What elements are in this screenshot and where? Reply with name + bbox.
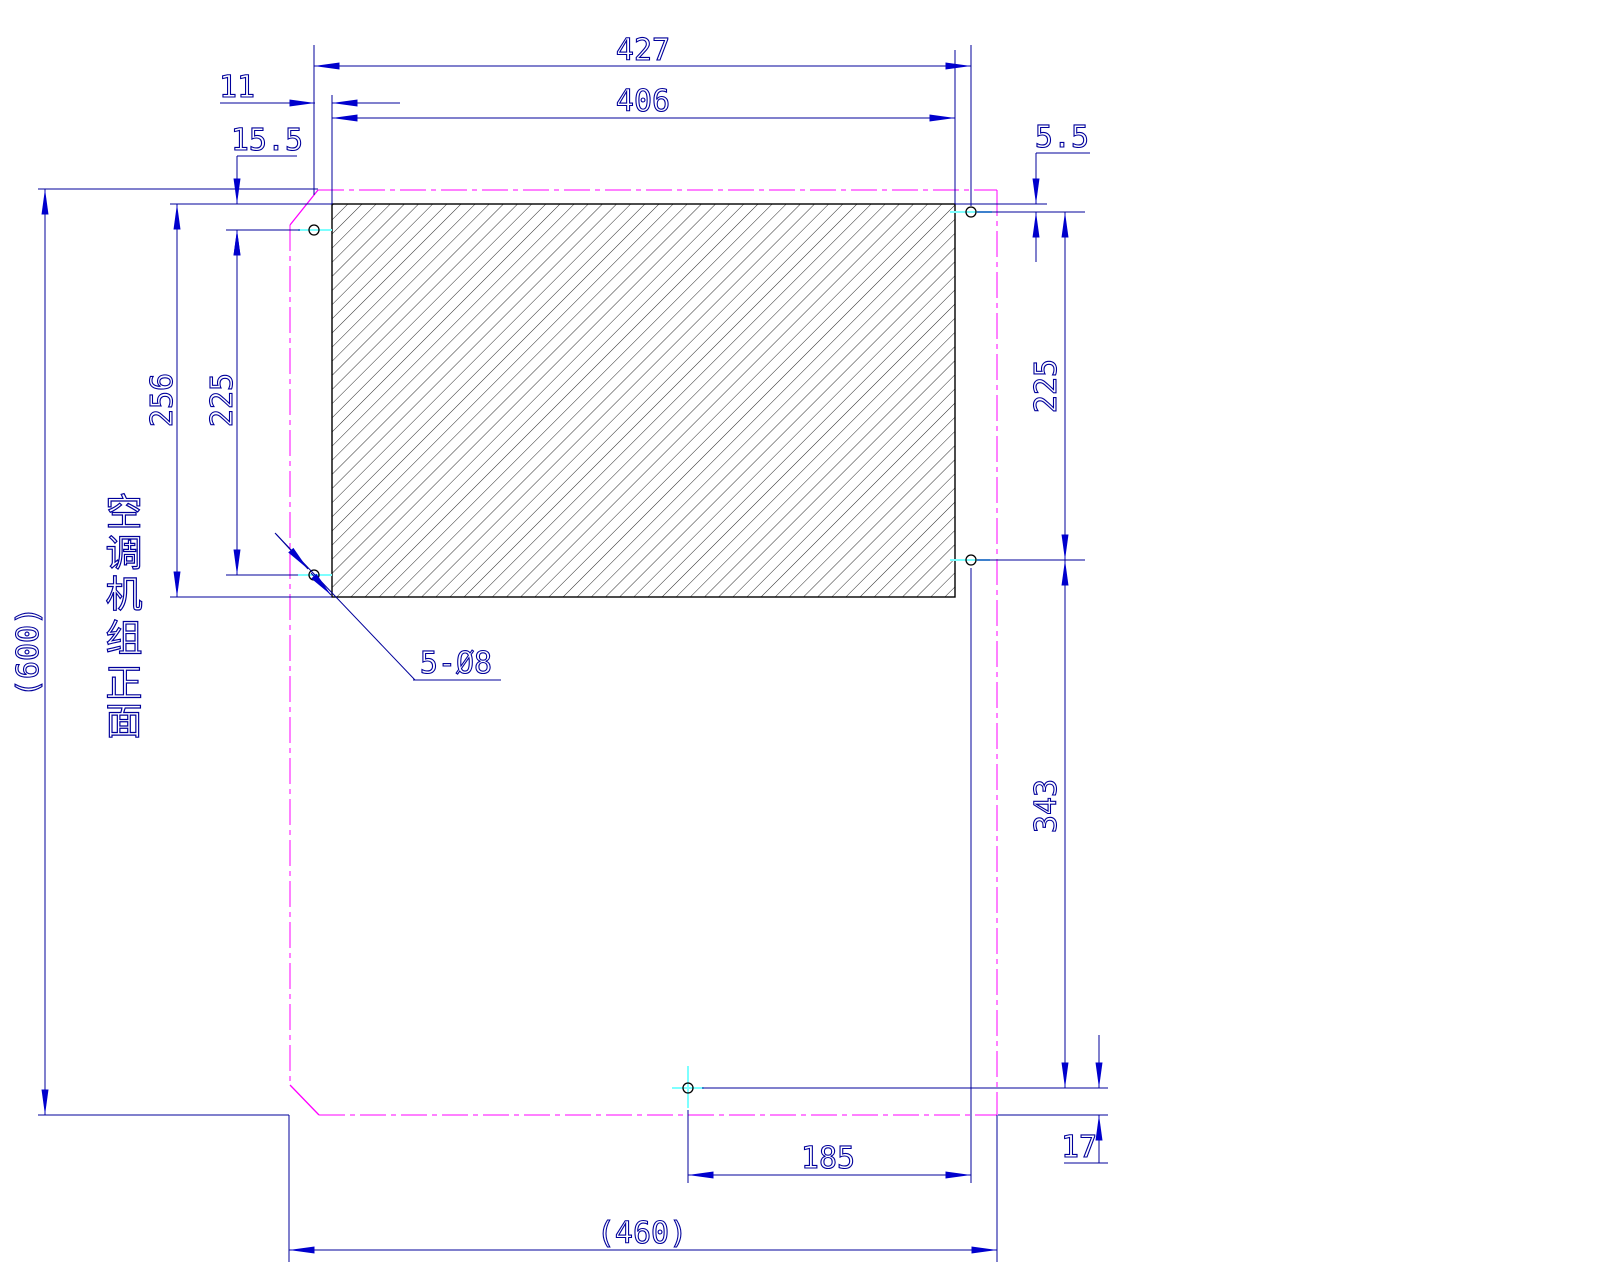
dim-11: 11 <box>219 70 400 105</box>
hole-bottom-center <box>672 1066 704 1108</box>
dim-label-600: (600) <box>11 607 46 697</box>
panel-chamfer-bottom-left <box>290 1085 319 1115</box>
dim-460: (460) <box>289 1216 997 1251</box>
dim-label-185: 185 <box>801 1141 855 1176</box>
cad-drawing: 427 406 11 15.5 5.5 256 225 <box>0 0 1600 1280</box>
dim-label-427: 427 <box>616 33 670 68</box>
dim-15-5: 15.5 <box>231 123 303 258</box>
dim-406: 406 <box>332 84 955 119</box>
dim-343: 343 <box>1029 560 1065 1088</box>
cutout-hatch-area <box>332 204 955 597</box>
leader-arrow-to-corner <box>311 573 331 595</box>
dim-label-15-5: 15.5 <box>231 123 303 158</box>
cad-drawing-page: 427 406 11 15.5 5.5 256 225 <box>0 0 1600 1280</box>
dim-label-225-left: 225 <box>205 373 240 427</box>
hole-note-label: 5-Ø8 <box>420 646 492 681</box>
side-label: 空 调 机 组 正 面 <box>106 491 143 743</box>
side-label-char-4: 组 <box>106 617 143 660</box>
dim-label-406: 406 <box>616 84 670 119</box>
dim-600: (600) <box>11 189 46 1115</box>
dim-label-460: (460) <box>597 1216 687 1251</box>
dim-label-11: 11 <box>219 70 255 105</box>
hole-top-left <box>298 225 332 235</box>
dim-label-256: 256 <box>145 373 180 427</box>
side-label-char-2: 调 <box>106 532 143 575</box>
side-label-char-3: 机 <box>106 573 143 616</box>
dim-label-225-right: 225 <box>1029 359 1064 413</box>
panel-chamfer-top-left <box>290 190 318 225</box>
dim-label-5-5: 5.5 <box>1035 120 1089 155</box>
vent-cutout <box>332 204 955 597</box>
dim-256: 256 <box>145 204 180 597</box>
dim-5-5: 5.5 <box>1035 120 1090 262</box>
dim-label-17: 17 <box>1061 1130 1097 1165</box>
side-label-char-6: 面 <box>106 700 143 743</box>
side-label-char-5: 正 <box>106 662 143 705</box>
leader-arrow-to-hole <box>276 534 308 569</box>
dim-427: 427 <box>314 33 971 68</box>
dim-17: 17 <box>1061 1035 1108 1165</box>
dim-label-343: 343 <box>1029 779 1064 833</box>
dim-185: 185 <box>688 1141 971 1176</box>
dim-225-left: 225 <box>205 230 240 575</box>
dim-225-right: 225 <box>1029 212 1065 560</box>
side-label-char-1: 空 <box>106 491 143 534</box>
